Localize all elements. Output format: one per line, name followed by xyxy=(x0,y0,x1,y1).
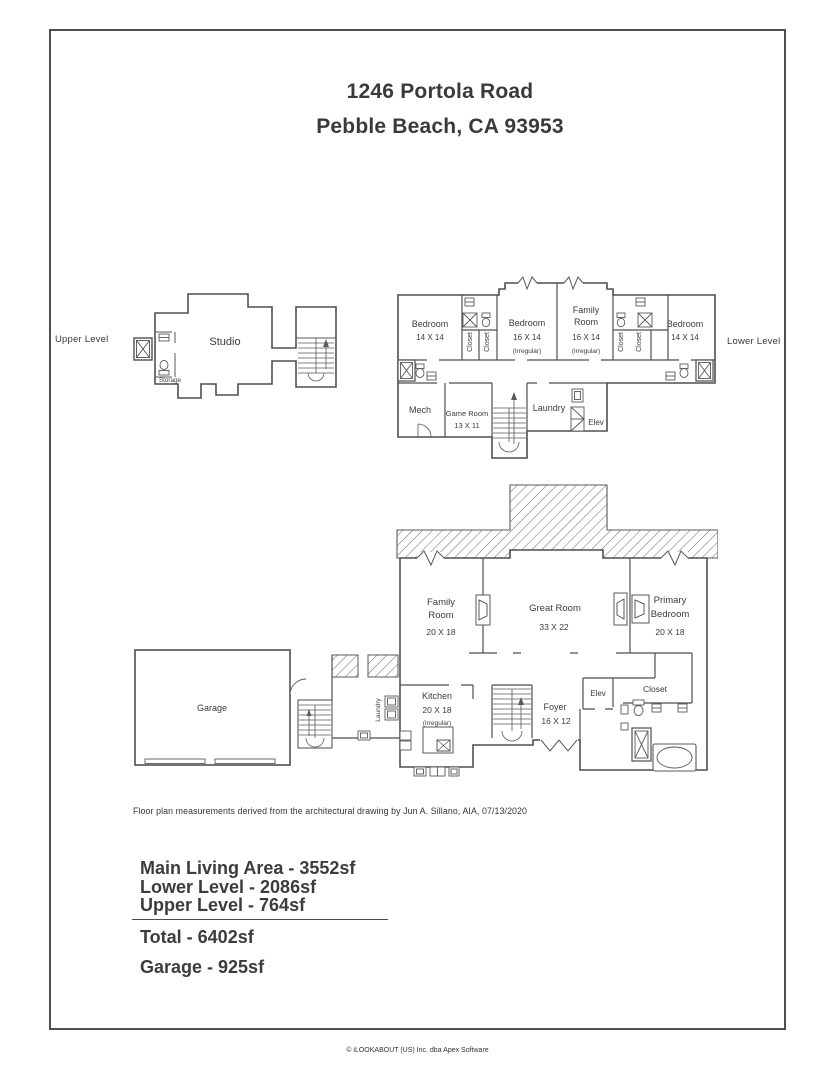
mech-label: Mech xyxy=(409,405,431,415)
room-dims: 14 X 14 xyxy=(416,333,444,342)
page-title: 1246 Portola Road Pebble Beach, CA 93953 xyxy=(0,74,835,144)
closet-label: Closet xyxy=(636,332,643,352)
elev-label: Elev xyxy=(590,689,606,698)
room-label: Bedroom xyxy=(509,318,546,328)
elevator-shaft-icon xyxy=(134,338,152,360)
room-label: Room xyxy=(428,610,453,621)
closet-label: Closet xyxy=(484,332,491,352)
upper-level-floorplan: Studio Storage xyxy=(128,281,350,403)
room-label: Kitchen xyxy=(422,691,452,701)
area-summary: Main Living Area - 3552sf Lower Level - … xyxy=(132,859,412,977)
breezeway-hatch xyxy=(332,655,398,677)
room-label: Foyer xyxy=(543,702,566,712)
garage-staircase-icon xyxy=(298,700,332,748)
summary-upper-level: Upper Level - 764sf xyxy=(132,896,412,915)
room-note: (Irregular) xyxy=(572,348,601,355)
room-dims: 16 X 14 xyxy=(513,333,541,342)
room-note: (Irregular) xyxy=(513,348,542,355)
elevator-shaft-icon xyxy=(571,389,584,431)
closet-label: Closet xyxy=(643,684,668,694)
summary-lower-level: Lower Level - 2086sf xyxy=(132,878,412,897)
room-dims: 20 X 18 xyxy=(655,627,685,637)
measurement-note: Floor plan measurements derived from the… xyxy=(133,806,527,816)
main-outline xyxy=(135,550,707,770)
room-label: Family xyxy=(427,597,455,608)
lower-level-floorplan: Bedroom 14 X 14 Bedroom 16 X 14 (Irregul… xyxy=(393,272,718,462)
summary-main-living: Main Living Area - 3552sf xyxy=(132,859,412,878)
kitchen-island-icon xyxy=(423,727,453,753)
room-dims: 14 X 14 xyxy=(671,333,699,342)
fireplace-icon xyxy=(476,595,490,625)
room-label: Family xyxy=(573,305,600,315)
deck-hatch xyxy=(397,485,718,558)
studio-label: Studio xyxy=(209,336,240,348)
city-line: Pebble Beach, CA 93953 xyxy=(0,109,835,144)
laundry-label: Laundry xyxy=(533,403,566,413)
laundry-label: Laundry xyxy=(375,698,382,722)
storage-label: Storage xyxy=(159,377,182,384)
room-label: Primary xyxy=(654,595,687,606)
entry-door-icon xyxy=(540,735,578,751)
room-dims: 20 X 18 xyxy=(426,627,456,637)
room-label: Great Room xyxy=(529,603,581,614)
summary-garage: Garage - 925sf xyxy=(132,958,412,977)
lower-level-label: Lower Level xyxy=(727,336,780,347)
room-kitchen: Kitchen 20 X 18 (Irregular) xyxy=(422,691,452,727)
summary-divider xyxy=(132,919,388,920)
room-label: Bedroom xyxy=(412,319,449,329)
room-note: (Irregular) xyxy=(423,720,452,727)
closet-label: Closet xyxy=(618,332,625,352)
room-primary: Primary Bedroom 20 X 18 xyxy=(651,595,690,637)
vent-icon xyxy=(159,334,169,341)
room-dims: 33 X 22 xyxy=(539,622,569,632)
toilet-icon xyxy=(159,361,169,376)
main-level-floorplan: Family Room 20 X 18 Great Room 33 X 22 P… xyxy=(133,483,718,795)
summary-total: Total - 6402sf xyxy=(132,928,412,947)
studio-outline xyxy=(155,294,336,398)
garage-label: Garage xyxy=(197,703,227,713)
room-label: Bedroom xyxy=(667,319,704,329)
room-bedroom-mid: Bedroom 16 X 14 (Irregular) xyxy=(509,318,546,355)
room-dims: 16 X 14 xyxy=(572,333,600,342)
double-fireplace-icon xyxy=(614,593,649,625)
room-label: Bedroom xyxy=(651,609,690,620)
room-family-main: Family Room 20 X 18 xyxy=(426,597,456,637)
door-arc xyxy=(290,679,306,695)
room-dims: 16 X 12 xyxy=(541,716,571,726)
upper-level-label: Upper Level xyxy=(55,334,108,345)
game-room-label: Game Room xyxy=(446,409,489,418)
closet-label: Closet xyxy=(467,332,474,352)
copyright-line: © iLOOKABOUT (US) Inc. dba Apex Software xyxy=(0,1047,835,1054)
room-dims: 20 X 18 xyxy=(422,705,452,715)
game-room-dims: 13 X 11 xyxy=(454,421,479,430)
address-line: 1246 Portola Road xyxy=(0,74,835,109)
room-label: Room xyxy=(574,317,598,327)
elev-label: Elev xyxy=(588,418,604,427)
